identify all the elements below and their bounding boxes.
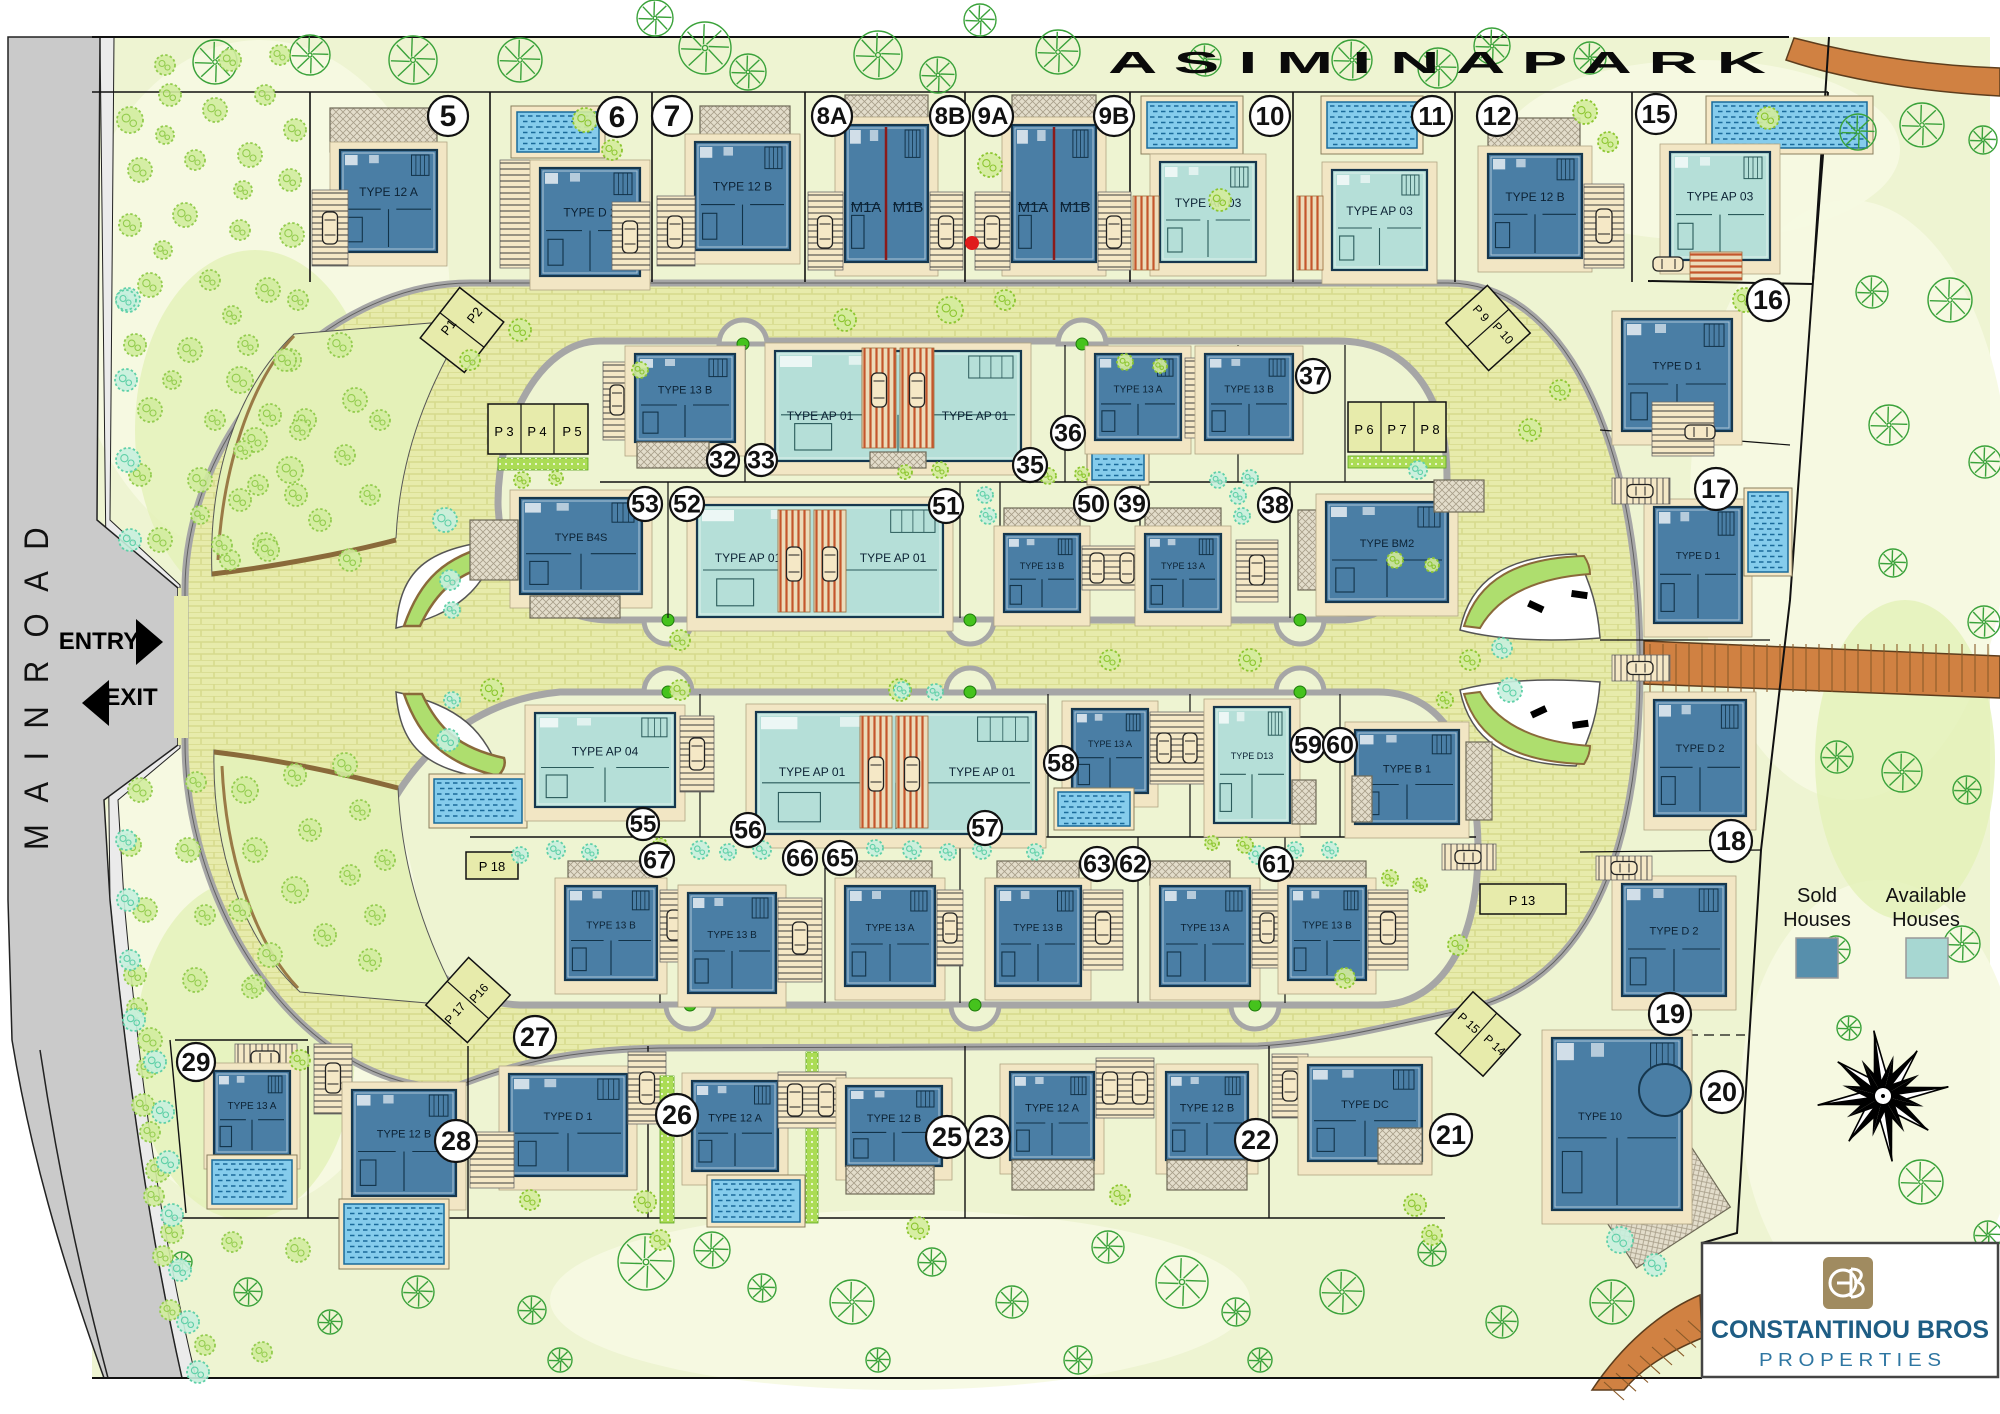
svg-text:A S I M I N A P A R K: A S I M I N A P A R K [1108, 45, 1767, 80]
svg-text:18: 18 [1716, 826, 1746, 856]
svg-text:36: 36 [1054, 420, 1082, 448]
svg-text:P 6: P 6 [1354, 422, 1373, 437]
svg-text:TYPE D 1: TYPE D 1 [1653, 360, 1702, 372]
svg-text:TYPE AP 01: TYPE AP 01 [949, 765, 1016, 779]
svg-text:TYPE 13 B: TYPE 13 B [586, 920, 636, 931]
svg-text:TYPE BM2: TYPE BM2 [1360, 538, 1414, 550]
svg-text:TYPE AP 01: TYPE AP 01 [860, 551, 927, 565]
svg-text:TYPE DC: TYPE DC [1341, 1099, 1389, 1111]
svg-text:TYPE AP 03: TYPE AP 03 [1346, 204, 1413, 218]
svg-text:50: 50 [1077, 491, 1105, 519]
svg-text:TYPE 12 A: TYPE 12 A [1025, 1103, 1079, 1115]
svg-text:TYPE D13: TYPE D13 [1231, 751, 1274, 761]
svg-text:TYPE D 1: TYPE D 1 [544, 1111, 593, 1123]
svg-text:37: 37 [1299, 363, 1327, 391]
svg-text:65: 65 [826, 845, 854, 873]
svg-text:17: 17 [1701, 474, 1731, 504]
svg-text:TYPE AP 01: TYPE AP 01 [779, 765, 846, 779]
svg-text:TYPE 13 B: TYPE 13 B [658, 385, 712, 397]
svg-text:51: 51 [932, 493, 960, 521]
svg-text:12: 12 [1483, 101, 1512, 131]
svg-text:Sold: Sold [1797, 885, 1837, 907]
svg-text:M1B: M1B [893, 199, 924, 216]
svg-text:29: 29 [182, 1047, 211, 1077]
svg-text:TYPE D 1: TYPE D 1 [1676, 551, 1721, 562]
svg-text:TYPE 12 A: TYPE 12 A [359, 185, 418, 199]
svg-text:7: 7 [664, 100, 681, 133]
svg-text:28: 28 [441, 1126, 471, 1156]
svg-text:TYPE 13 A: TYPE 13 A [228, 1101, 277, 1112]
svg-text:TYPE 12 B: TYPE 12 B [867, 1113, 921, 1125]
svg-text:TYPE 13 A: TYPE 13 A [1114, 385, 1163, 396]
svg-text:P 4: P 4 [527, 424, 546, 439]
svg-text:EXIT: EXIT [104, 684, 158, 711]
svg-text:TYPE 13 B: TYPE 13 B [1302, 920, 1352, 931]
svg-text:P 7: P 7 [1387, 422, 1406, 437]
svg-text:TYPE AP 01: TYPE AP 01 [942, 409, 1009, 423]
svg-text:TYPE B4S: TYPE B4S [555, 532, 608, 544]
svg-text:TYPE 13 B: TYPE 13 B [1224, 385, 1274, 396]
svg-text:66: 66 [786, 845, 814, 873]
svg-text:TYPE 13 B: TYPE 13 B [707, 930, 757, 941]
svg-text:M1A: M1A [1018, 199, 1049, 216]
svg-text:TYPE 12 B: TYPE 12 B [1505, 190, 1564, 204]
svg-text:P 5: P 5 [562, 424, 581, 439]
svg-text:TYPE AP 01: TYPE AP 01 [715, 551, 782, 565]
svg-text:9A: 9A [978, 103, 1009, 130]
svg-text:TYPE D 2: TYPE D 2 [563, 206, 617, 220]
svg-text:P 3: P 3 [494, 424, 513, 439]
svg-text:20: 20 [1707, 1077, 1737, 1107]
svg-text:8A: 8A [817, 103, 848, 130]
svg-text:TYPE D 2: TYPE D 2 [1676, 743, 1725, 755]
svg-text:TYPE 12 B: TYPE 12 B [377, 1129, 431, 1141]
svg-text:35: 35 [1016, 452, 1044, 480]
svg-text:59: 59 [1294, 732, 1322, 760]
svg-text:16: 16 [1753, 285, 1783, 315]
svg-text:11: 11 [1418, 101, 1446, 131]
svg-text:56: 56 [734, 817, 762, 845]
svg-text:P 13: P 13 [1509, 893, 1536, 908]
svg-text:33: 33 [747, 447, 775, 475]
svg-text:23: 23 [974, 1122, 1004, 1152]
svg-text:P 18: P 18 [479, 859, 506, 874]
svg-text:27: 27 [520, 1022, 550, 1052]
svg-text:32: 32 [709, 447, 737, 475]
svg-text:63: 63 [1083, 851, 1111, 879]
svg-text:TYPE 13 B: TYPE 13 B [1013, 923, 1063, 934]
svg-text:Houses: Houses [1783, 909, 1851, 931]
svg-text:61: 61 [1262, 851, 1290, 879]
svg-text:26: 26 [662, 1100, 692, 1130]
svg-text:25: 25 [932, 1122, 962, 1152]
svg-text:8B: 8B [935, 103, 966, 130]
svg-text:ENTRY: ENTRY [59, 628, 139, 655]
svg-text:M1A: M1A [851, 199, 882, 216]
svg-text:P 8: P 8 [1420, 422, 1439, 437]
svg-text:19: 19 [1655, 999, 1685, 1029]
svg-text:53: 53 [631, 491, 659, 519]
svg-text:38: 38 [1261, 492, 1289, 520]
svg-text:TYPE 13 A: TYPE 13 A [1161, 561, 1205, 571]
svg-text:P R O P E R T I E S: P R O P E R T I E S [1759, 1350, 1941, 1370]
svg-text:TYPE AP 03: TYPE AP 03 [1687, 190, 1754, 204]
svg-text:TYPE 10: TYPE 10 [1578, 1111, 1622, 1123]
svg-text:TYPE 13 A: TYPE 13 A [1088, 739, 1132, 749]
svg-text:TYPE 13 A: TYPE 13 A [866, 923, 915, 934]
svg-text:60: 60 [1326, 732, 1354, 760]
svg-text:9B: 9B [1099, 103, 1130, 130]
svg-text:39: 39 [1118, 491, 1146, 519]
svg-text:58: 58 [1047, 750, 1075, 778]
svg-text:5: 5 [440, 100, 457, 133]
svg-text:10: 10 [1256, 101, 1285, 131]
svg-text:55: 55 [630, 811, 657, 838]
svg-text:TYPE 13 A: TYPE 13 A [1181, 923, 1230, 934]
svg-text:TYPE 12 B: TYPE 12 B [1180, 1103, 1234, 1115]
svg-text:15: 15 [1642, 99, 1671, 129]
svg-text:M1B: M1B [1060, 199, 1091, 216]
svg-text:M A I N R O A D: M A I N R O A D [18, 520, 56, 850]
svg-text:TYPE B 1: TYPE B 1 [1383, 763, 1431, 775]
svg-text:22: 22 [1241, 1125, 1271, 1155]
svg-text:TYPE 12 B: TYPE 12 B [713, 180, 772, 194]
svg-text:TYPE 13 B: TYPE 13 B [1020, 561, 1065, 571]
svg-text:TYPE 12 A: TYPE 12 A [708, 1113, 762, 1125]
svg-text:62: 62 [1119, 851, 1147, 879]
svg-text:CONSTANTINOU BROS: CONSTANTINOU BROS [1711, 1316, 1989, 1344]
svg-text:TYPE AP 01: TYPE AP 01 [787, 409, 854, 423]
svg-text:Available: Available [1886, 885, 1967, 907]
svg-text:TYPE AP 04: TYPE AP 04 [572, 744, 639, 758]
svg-text:57: 57 [971, 815, 999, 843]
svg-text:TYPE D 2: TYPE D 2 [1650, 925, 1699, 937]
svg-text:21: 21 [1436, 1120, 1466, 1150]
svg-text:Houses: Houses [1892, 909, 1960, 931]
svg-text:52: 52 [673, 491, 701, 519]
svg-text:67: 67 [643, 847, 671, 875]
svg-text:6: 6 [609, 101, 626, 134]
